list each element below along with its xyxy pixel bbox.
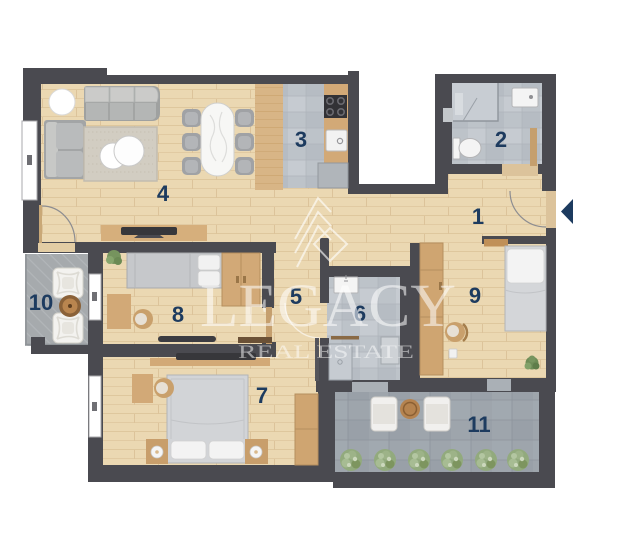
svg-text:2: 2 bbox=[495, 127, 507, 152]
svg-text:REAL ESTATE: REAL ESTATE bbox=[238, 342, 414, 363]
svg-text:11: 11 bbox=[467, 412, 490, 437]
svg-text:9: 9 bbox=[469, 283, 481, 308]
svg-text:4: 4 bbox=[157, 181, 170, 206]
svg-text:LEGACY: LEGACY bbox=[200, 273, 456, 340]
svg-text:10: 10 bbox=[29, 290, 53, 315]
svg-text:7: 7 bbox=[256, 383, 268, 408]
svg-text:3: 3 bbox=[295, 127, 307, 152]
svg-text:8: 8 bbox=[172, 302, 184, 327]
svg-text:1: 1 bbox=[472, 204, 484, 229]
